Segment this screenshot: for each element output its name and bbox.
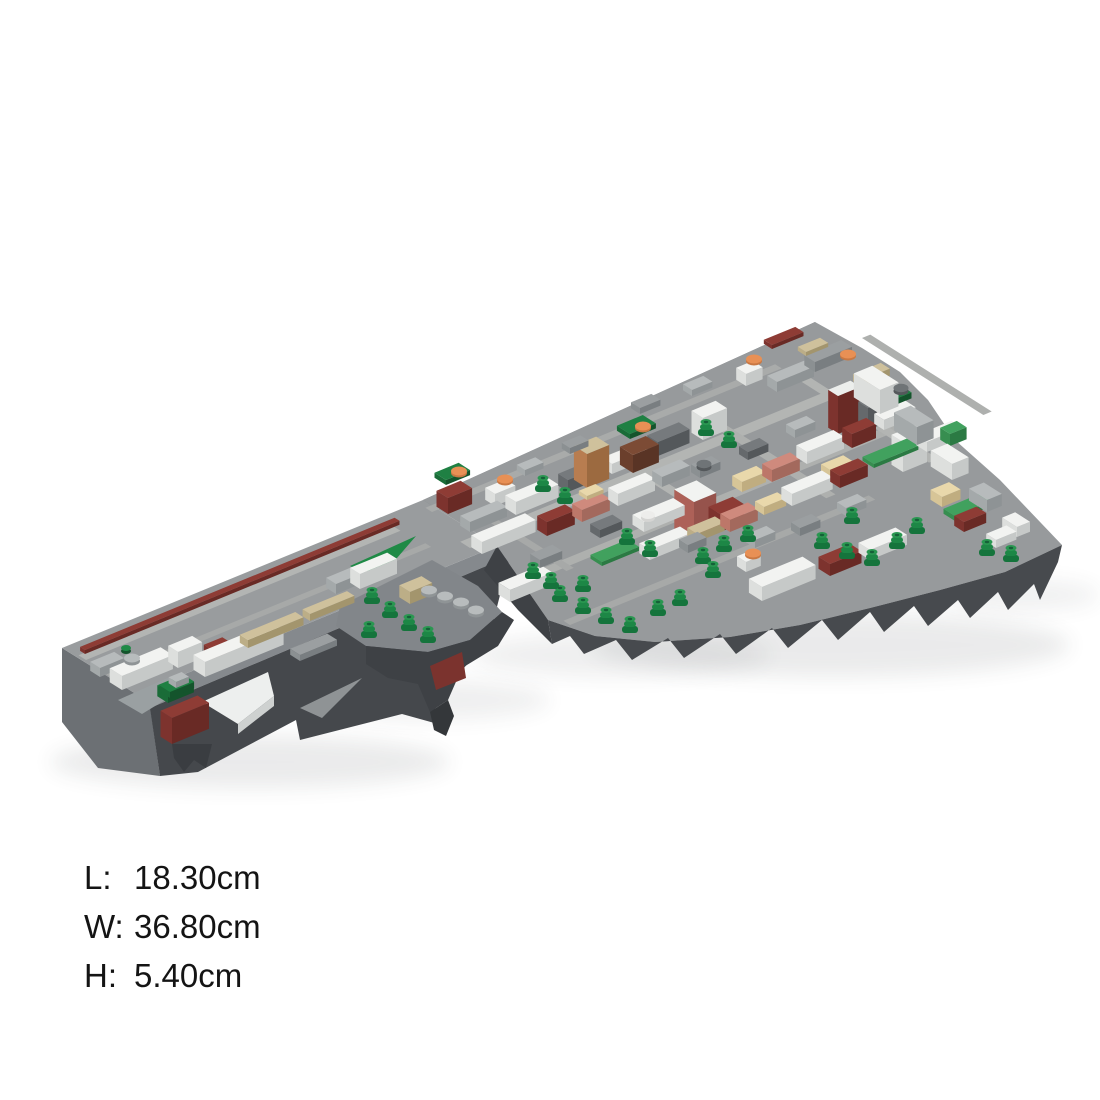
dimension-width: W: 36.80cm	[84, 902, 261, 951]
dimensions-block: L: 18.30cm W: 36.80cm H: 5.40cm	[84, 853, 261, 1000]
dimension-length-value: 18.30cm	[134, 853, 261, 902]
dimension-length: L: 18.30cm	[84, 853, 261, 902]
dimension-height: H: 5.40cm	[84, 951, 261, 1000]
dimension-length-label: L:	[84, 853, 134, 902]
dimension-height-label: H:	[84, 951, 134, 1000]
dimension-width-value: 36.80cm	[134, 902, 261, 951]
dimension-height-value: 5.40cm	[134, 951, 242, 1000]
dimension-width-label: W:	[84, 902, 134, 951]
